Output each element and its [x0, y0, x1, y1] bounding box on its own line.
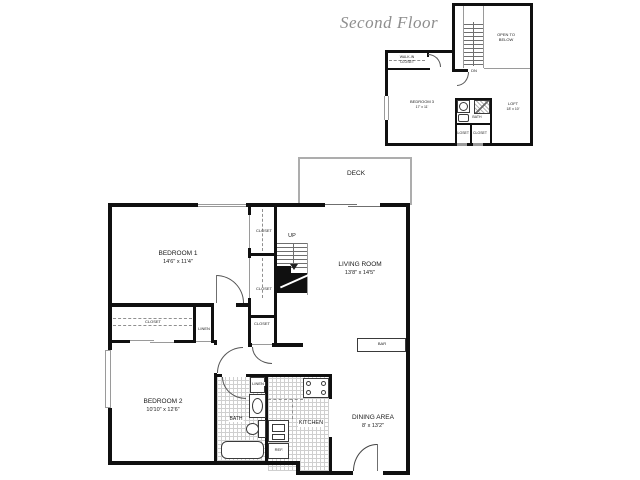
- closet-upper-label: CLOSET: [256, 229, 272, 233]
- kitchen-label: KITCHEN: [298, 421, 324, 427]
- sf-window-line: [384, 96, 385, 120]
- stair-tread: [277, 259, 307, 260]
- stair-tread: [277, 243, 307, 244]
- mf-wall-left: [108, 203, 112, 465]
- sf-wall-left-upper: [452, 3, 455, 72]
- bedroom1-window-line: [198, 204, 246, 205]
- deck-label: DECK: [347, 171, 365, 178]
- sf-sink-bowl: [459, 102, 468, 111]
- stove-burner: [321, 381, 326, 386]
- counter-edge-line-v: [292, 399, 293, 419]
- bedroom1-door-leaf: [216, 275, 217, 303]
- dn-label: DN: [471, 69, 477, 73]
- kitchen-north-wall: [268, 374, 332, 377]
- bath-sink-bowl: [252, 398, 263, 414]
- closet-west-shelf: [113, 325, 192, 326]
- closet-divider-wall: [248, 253, 277, 256]
- bedroom2-door-arc: [217, 347, 243, 373]
- open-to-below-label2: BELOW: [499, 38, 513, 42]
- sf-wall-top-lower: [385, 50, 455, 53]
- entry-door-leaf: [377, 444, 378, 471]
- floor-plan-canvas: Second Floor OPEN TO BELOW DN WALK-IN: [0, 0, 640, 480]
- toilet-tank: [258, 420, 266, 438]
- up-arrow-head: [290, 264, 298, 270]
- dining-label: DINING AREA: [352, 415, 394, 422]
- kitchen-east-wall-lower: [329, 437, 332, 475]
- sf-stair-side-right: [483, 6, 484, 68]
- sf-closet-door-gap: [457, 143, 467, 146]
- stair-east-line: [307, 243, 308, 295]
- second-floor-title: Second Floor: [340, 13, 438, 33]
- kitchen-sink-basin: [272, 424, 285, 432]
- sf-window-line: [388, 96, 389, 120]
- closet-west-slider-panel: [130, 340, 154, 341]
- bedroom2-window-cap: [105, 407, 111, 408]
- sf-shower-stall: [474, 100, 490, 114]
- closet-upper-door-line: [249, 215, 250, 248]
- dining-dims: 8' x 13'2": [362, 424, 384, 430]
- sf-wall-right: [530, 3, 533, 146]
- bedroom2-dims: 10'10" x 12'6": [146, 408, 179, 414]
- bathtub: [221, 441, 264, 459]
- entry-door-arc: [353, 444, 377, 471]
- closet-lower-door-line: [249, 258, 250, 298]
- hall-closet-door-line: [252, 344, 272, 345]
- bedroom2-window-cap: [105, 350, 111, 351]
- sf-bedroom3-door-arc: [457, 72, 469, 86]
- hall-closet-north-wall: [248, 315, 277, 318]
- linen-hall-east-wall: [211, 303, 214, 343]
- closet-west-slider-panel: [150, 342, 174, 343]
- hall-closet-door-arc: [252, 347, 272, 364]
- linen-hall-door-line: [196, 341, 211, 342]
- stove-burner: [306, 390, 311, 395]
- up-arrow-line: [293, 243, 294, 265]
- bedroom1-south-wall: [108, 303, 214, 307]
- closet-hall-label: CLOSET: [254, 322, 270, 326]
- toilet-bowl: [246, 423, 259, 435]
- sf-wall-wic-bottom: [385, 68, 430, 70]
- stair-tread: [277, 255, 307, 256]
- sf-open-rail-line: [484, 68, 530, 69]
- bedroom1-label: BEDROOM 1: [158, 251, 197, 258]
- living-room-dims: 13'8" x 14'5": [345, 271, 375, 277]
- deck-slider-panel: [325, 204, 357, 205]
- sf-closet-right-label: CLOSET: [473, 131, 487, 135]
- kitchen-east-wall-upper: [329, 374, 332, 399]
- deck-slider-panel: [348, 206, 380, 207]
- up-label: UP: [288, 234, 296, 240]
- sf-stair-centerline: [473, 22, 474, 66]
- sf-bath-wall-right: [490, 98, 492, 145]
- loft-dims: 18' x 10': [507, 107, 520, 111]
- hall-closet-west-wall: [248, 307, 251, 343]
- bath-label: BATH: [229, 417, 244, 422]
- bedroom2-label: BEDROOM 2: [143, 399, 182, 406]
- bedroom2-window-line: [105, 350, 106, 408]
- stove-burner: [306, 381, 311, 386]
- bedroom1-window-line: [198, 206, 246, 207]
- kitchen-sink-basin: [272, 434, 285, 440]
- mf-wall-bottom-left: [108, 461, 300, 465]
- walkin-closet-label2: CLOSET: [400, 60, 414, 64]
- bedroom3-dims: 17' x 11': [416, 105, 429, 109]
- closet-lower-rod: [262, 258, 263, 298]
- deck-outline: [298, 157, 412, 205]
- sf-closet-wall-mid: [470, 125, 472, 143]
- sf-stair-side-left: [463, 6, 464, 68]
- bedroom1-door-arc: [216, 275, 244, 303]
- mf-wall-right: [406, 203, 410, 475]
- sf-closet-left-label: CLOSET: [455, 131, 469, 135]
- stair-tread: [277, 247, 307, 248]
- linen-bath-label: LINEN: [251, 382, 265, 386]
- entry-door-gap: [353, 471, 383, 475]
- sf-bath-wall-bottom: [455, 123, 492, 125]
- stair-tread: [277, 251, 307, 252]
- bedroom2-window-line: [110, 350, 111, 408]
- bar-label: BAR: [378, 342, 386, 346]
- sf-toilet: [458, 114, 469, 122]
- linen-hall-west-wall: [193, 303, 196, 343]
- sf-closet-door-gap: [473, 143, 483, 146]
- counter-edge-line: [268, 399, 303, 400]
- closet-lower-label: CLOSET: [256, 287, 272, 291]
- sf-bath-label: BATH: [472, 115, 483, 119]
- bedroom1-dims: 14'6" x 11'4": [163, 260, 193, 266]
- sf-wall-top: [452, 3, 533, 6]
- ref-label: REF.: [275, 448, 284, 452]
- closet-west-label: CLOSET: [144, 320, 162, 324]
- sf-walkin-door-arc: [428, 54, 441, 67]
- linen-hall-label: LINEN: [198, 327, 210, 331]
- stove-burner: [321, 390, 326, 395]
- living-room-label: LIVING ROOM: [338, 262, 381, 269]
